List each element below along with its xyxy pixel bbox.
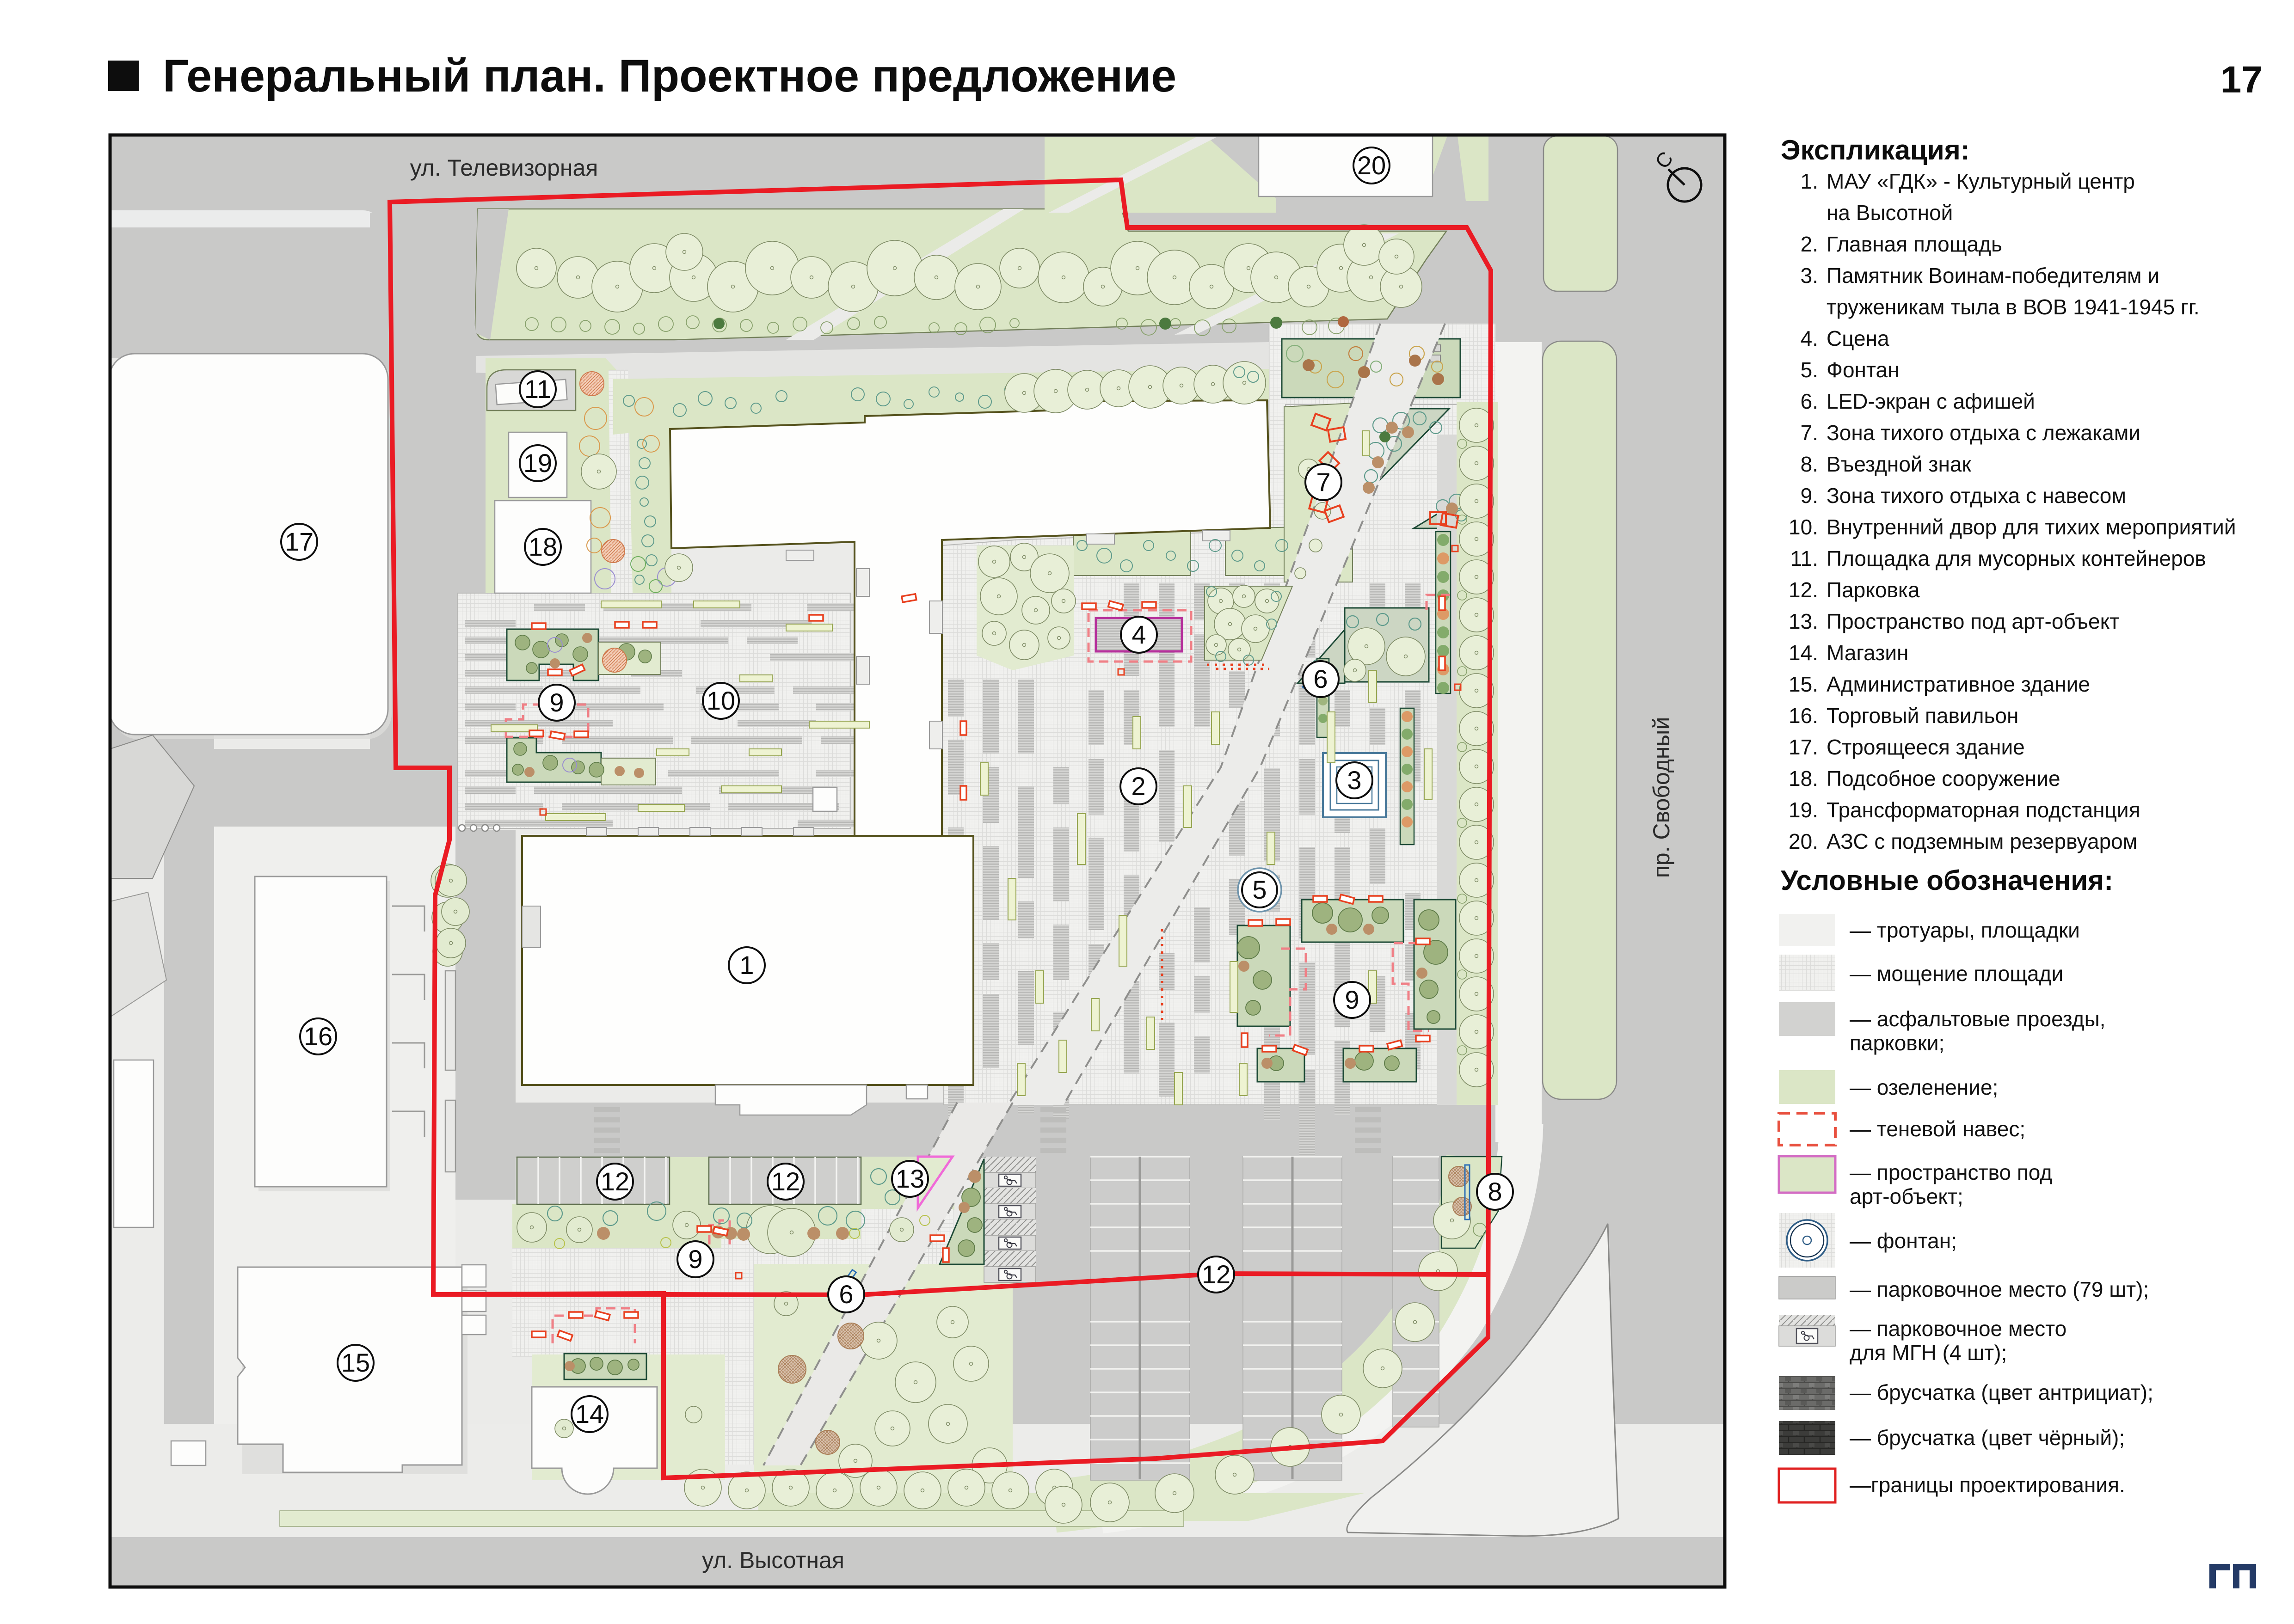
svg-text:13: 13 [896,1164,924,1193]
svg-text:парковки;: парковки; [1850,1031,1944,1055]
svg-text:12: 12 [771,1167,800,1196]
svg-text:9.: 9. [1801,484,1818,508]
svg-text:Трансформаторная подстанция: Трансформаторная подстанция [1827,798,2140,822]
svg-text:— фонтан;: — фонтан; [1850,1229,1957,1253]
svg-text:Фонтан: Фонтан [1827,358,1900,382]
svg-text:Подсобное сооружение: Подсобное сооружение [1827,766,2060,791]
svg-text:АЗС с подземным резервуаром: АЗС с подземным резервуаром [1827,829,2137,853]
svg-text:13.: 13. [1789,609,1818,633]
svg-text:6: 6 [839,1280,853,1309]
svg-text:LED-экран с афишей: LED-экран с афишей [1827,389,2035,413]
svg-text:12: 12 [1202,1260,1230,1289]
svg-text:3: 3 [1347,766,1361,795]
svg-text:—границы проектирования.: —границы проектирования. [1850,1473,2125,1497]
svg-text:20: 20 [1357,151,1386,180]
svg-text:пр. Свободный: пр. Свободный [1648,717,1674,878]
svg-text:16.: 16. [1789,704,1818,728]
svg-text:11.: 11. [1790,546,1818,570]
svg-text:Въездной знак: Въездной знак [1827,452,1971,476]
svg-text:Магазин: Магазин [1827,641,1908,665]
svg-text:Административное здание: Административное здание [1827,672,2090,696]
svg-text:Строящееся здание: Строящееся здание [1827,735,2025,759]
svg-text:18: 18 [529,532,557,561]
svg-text:16: 16 [304,1022,332,1051]
svg-text:— парковочное место: — парковочное место [1850,1317,2066,1341]
svg-text:— асфальтовые проезды,: — асфальтовые проезды, [1850,1007,2105,1031]
svg-text:Сцена: Сцена [1827,326,1889,350]
svg-text:1.: 1. [1801,169,1818,193]
svg-text:12.: 12. [1789,578,1818,602]
svg-text:МАУ «ГДК» - Культурный центр: МАУ «ГДК» - Культурный центр [1827,169,2135,193]
svg-text:труженикам тыла в ВОВ 1941-194: труженикам тыла в ВОВ 1941-1945 гг. [1827,295,2200,319]
svg-text:арт-объект;: арт-объект; [1850,1184,1963,1208]
svg-text:Площадка для мусорных контейне: Площадка для мусорных контейнеров [1827,546,2206,570]
svg-text:11: 11 [524,374,551,404]
svg-text:4: 4 [1132,620,1146,649]
svg-text:Зона тихого отдыха с навесом: Зона тихого отдыха с навесом [1827,484,2126,508]
svg-text:2.: 2. [1801,232,1818,256]
svg-text:4.: 4. [1801,326,1818,350]
svg-text:10: 10 [707,686,735,715]
svg-text:10.: 10. [1789,515,1818,539]
svg-text:Памятник Воинам-победителям и: Памятник Воинам-победителям и [1827,264,2159,288]
svg-text:2: 2 [1131,772,1145,801]
svg-text:— брусчатка (цвет чёрный);: — брусчатка (цвет чёрный); [1850,1426,2125,1450]
svg-text:7.: 7. [1801,421,1818,445]
svg-text:3.: 3. [1801,264,1818,288]
svg-text:ул. Телевизорная: ул. Телевизорная [410,155,598,181]
svg-text:Пространство под арт-объект: Пространство под арт-объект [1827,609,2119,633]
svg-text:15.: 15. [1789,672,1818,696]
svg-text:Парковка: Парковка [1827,578,1920,602]
svg-text:9: 9 [688,1244,702,1274]
svg-text:6: 6 [1313,664,1328,693]
svg-text:20.: 20. [1789,829,1818,853]
svg-text:1: 1 [739,950,754,980]
svg-text:8.: 8. [1801,452,1818,476]
svg-text:Экспликация:: Экспликация: [1781,135,1970,165]
svg-text:14: 14 [575,1399,604,1428]
svg-text:8: 8 [1488,1177,1502,1206]
svg-text:— пространство под: — пространство под [1850,1160,2052,1184]
svg-text:17.: 17. [1789,735,1818,759]
svg-text:5: 5 [1252,875,1267,904]
svg-text:12: 12 [601,1167,629,1196]
svg-text:— брусчатка (цвет антрициат);: — брусчатка (цвет антрициат); [1850,1380,2153,1404]
svg-text:18.: 18. [1789,766,1818,791]
svg-text:5.: 5. [1801,358,1818,382]
svg-text:15: 15 [341,1348,370,1377]
svg-text:для МГН (4 шт);: для МГН (4 шт); [1850,1341,2007,1365]
svg-text:6.: 6. [1801,389,1818,413]
svg-text:— теневой навес;: — теневой навес; [1850,1117,2025,1141]
svg-text:Генеральный план. Проектное пр: Генеральный план. Проектное предложение [163,50,1176,101]
svg-text:— тротуары, площадки: — тротуары, площадки [1850,918,2080,942]
svg-text:14.: 14. [1789,641,1818,665]
svg-text:Условные обозначения:: Условные обозначения: [1781,865,2113,896]
svg-text:на Высотной: на Высотной [1827,201,1953,225]
svg-text:9: 9 [549,688,564,717]
svg-text:Внутренний двор для тихих меро: Внутренний двор для тихих мероприятий [1827,515,2236,539]
svg-text:— озеленение;: — озеленение; [1850,1075,1998,1099]
svg-text:— мощение площади: — мощение площади [1850,962,2063,986]
svg-text:17: 17 [285,527,314,556]
svg-text:— парковочное место (79 шт);: — парковочное место (79 шт); [1850,1277,2149,1301]
svg-text:19.: 19. [1789,798,1818,822]
svg-text:Главная площадь: Главная площадь [1827,232,2002,256]
svg-text:19: 19 [523,448,552,478]
svg-text:ул. Высотная: ул. Высотная [702,1547,844,1573]
svg-text:Зона тихого отдыха с лежаками: Зона тихого отдыха с лежаками [1827,421,2140,445]
svg-text:9: 9 [1345,985,1359,1014]
svg-text:17: 17 [2220,59,2263,101]
svg-text:Торговый павильон: Торговый павильон [1827,704,2018,728]
svg-text:7: 7 [1316,467,1330,496]
